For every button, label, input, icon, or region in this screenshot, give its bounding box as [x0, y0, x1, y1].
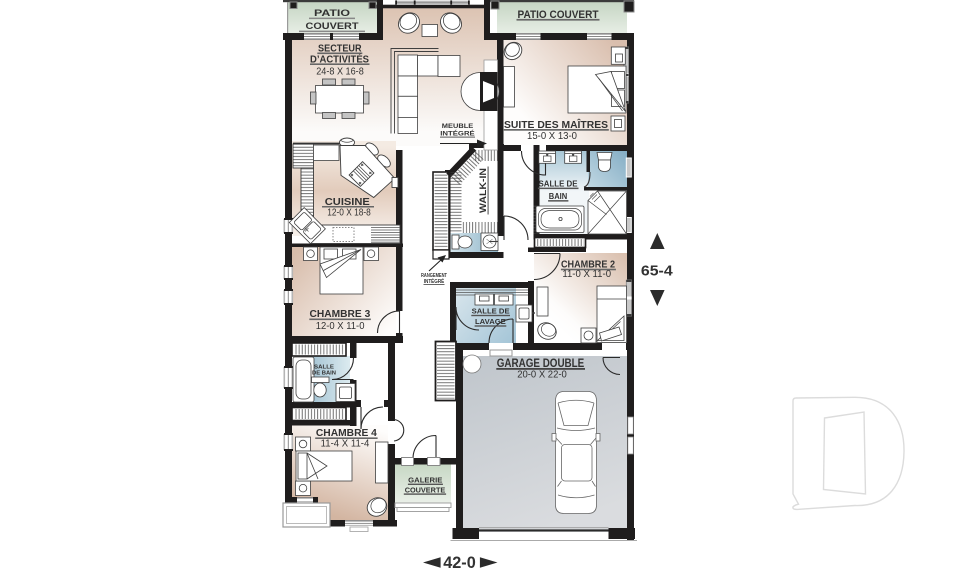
svg-text:INTÉGRÉ: INTÉGRÉ: [440, 129, 475, 138]
svg-text:SALLE DE: SALLE DE: [539, 179, 579, 188]
svg-text:20-0 X 22-0: 20-0 X 22-0: [517, 370, 567, 381]
svg-text:BAIN: BAIN: [549, 192, 568, 201]
svg-text:MEUBLE: MEUBLE: [442, 123, 474, 130]
svg-text:SALLE DE: SALLE DE: [472, 307, 510, 316]
svg-text:COUVERT: COUVERT: [306, 21, 359, 32]
svg-text:11-4 X 11-4: 11-4 X 11-4: [321, 439, 370, 450]
svg-text:GARAGE DOUBLE: GARAGE DOUBLE: [497, 356, 585, 370]
svg-text:11-0 X 11-0: 11-0 X 11-0: [562, 269, 611, 280]
svg-text:COUVERTE: COUVERTE: [405, 485, 446, 494]
svg-text:DE BAIN: DE BAIN: [312, 371, 336, 377]
svg-text:65-4: 65-4: [641, 263, 674, 279]
svg-text:LAVAGE: LAVAGE: [475, 317, 506, 326]
svg-text:INTÉGRÉ: INTÉGRÉ: [424, 277, 445, 285]
svg-text:12-0 X 18-8: 12-0 X 18-8: [327, 207, 371, 218]
svg-text:42-0: 42-0: [443, 554, 476, 569]
svg-text:PATIO: PATIO: [314, 8, 350, 19]
svg-text:12-0 X 11-0: 12-0 X 11-0: [316, 321, 365, 332]
svg-text:15-0 X 13-0: 15-0 X 13-0: [527, 131, 577, 142]
svg-text:WALK-IN: WALK-IN: [478, 168, 488, 213]
svg-text:GALERIE: GALERIE: [408, 476, 442, 485]
svg-text:24-8 X 16-8: 24-8 X 16-8: [316, 67, 364, 78]
